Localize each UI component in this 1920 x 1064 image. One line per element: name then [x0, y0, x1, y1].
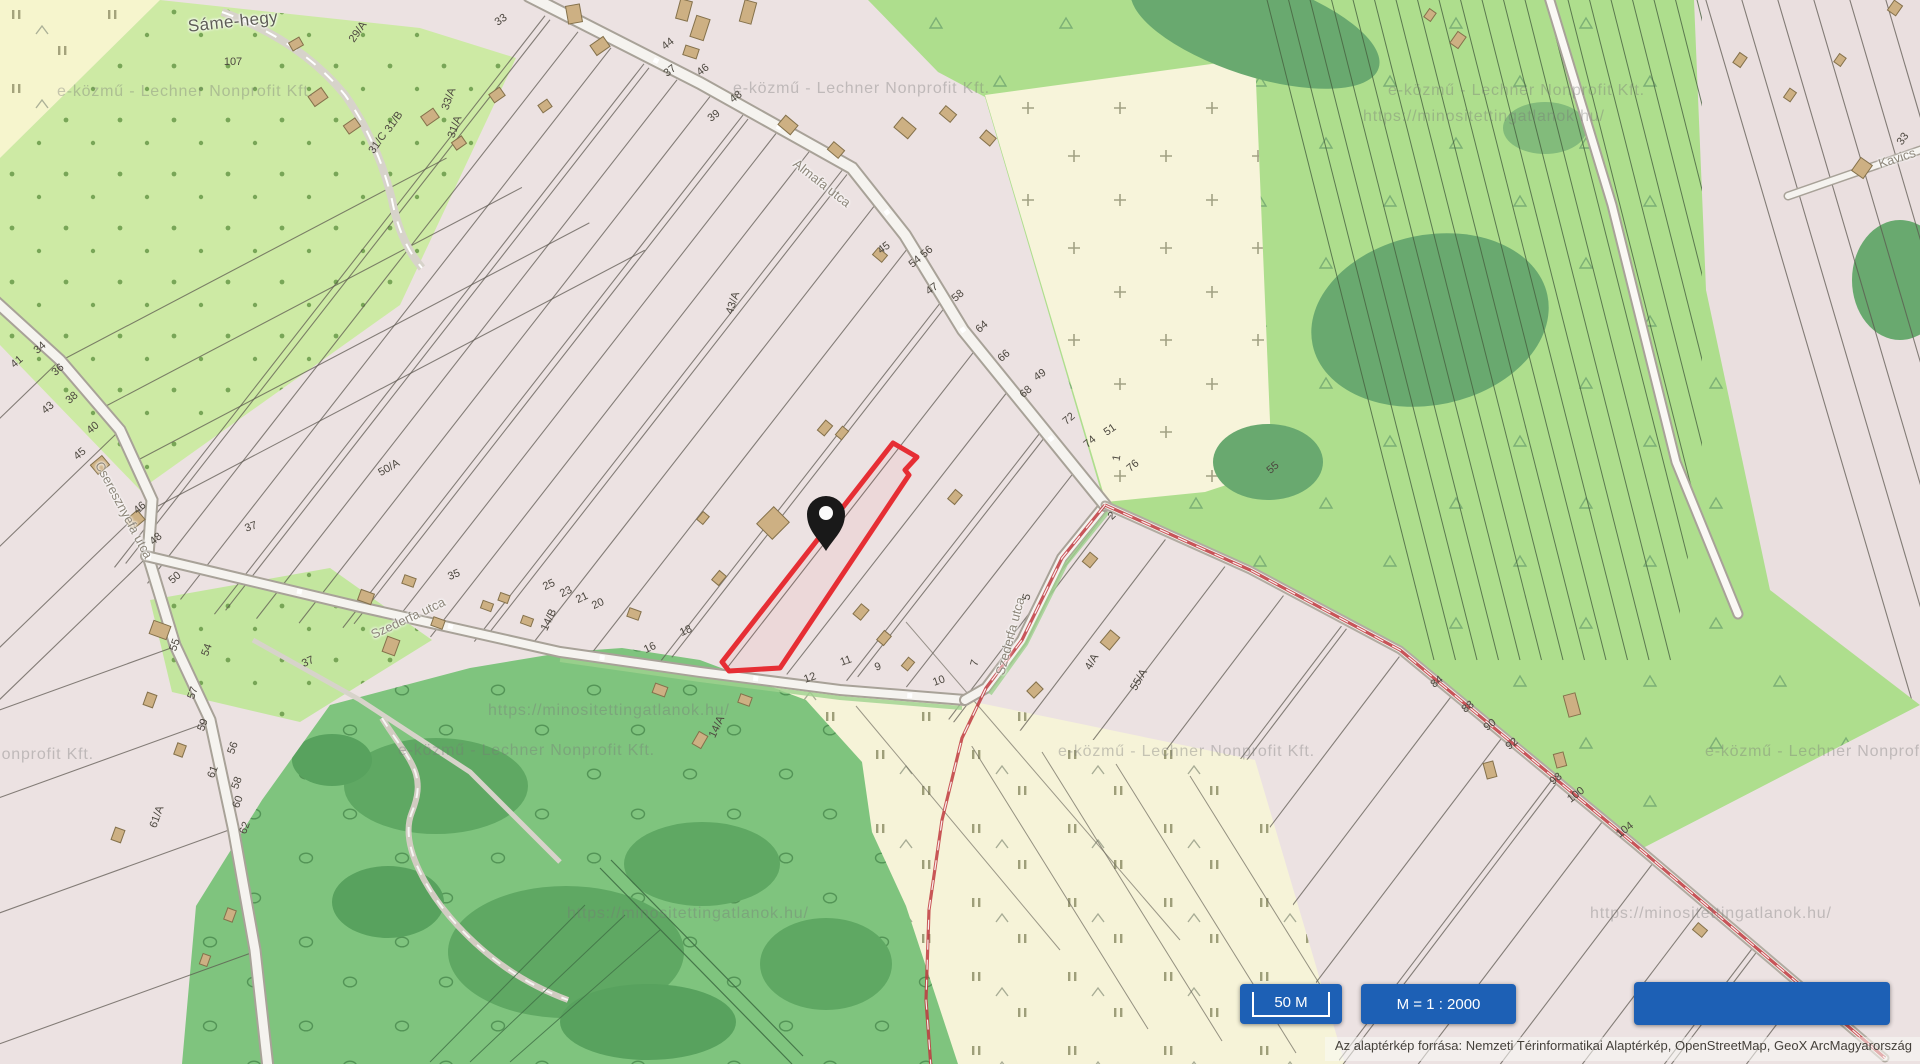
map-viewport[interactable]: e-közmű - Lechner Nonprofit Kft.e-közmű … [0, 0, 1920, 1064]
scale-ratio-button[interactable]: M = 1 : 2000 [1361, 984, 1516, 1024]
blank-action-button[interactable] [1634, 982, 1890, 1025]
map-attribution: Az alaptérkép forrása: Nemzeti Térinform… [1325, 1037, 1920, 1061]
scale-bar-button[interactable]: 50 M [1240, 984, 1342, 1024]
parcel-number: 107 [224, 56, 242, 68]
scale-bar-label: 50 M [1274, 994, 1307, 1011]
landuse-regions [0, 0, 1920, 1064]
scale-ratio-label: M = 1 : 2000 [1397, 996, 1481, 1013]
map-canvas[interactable] [0, 0, 1920, 1064]
